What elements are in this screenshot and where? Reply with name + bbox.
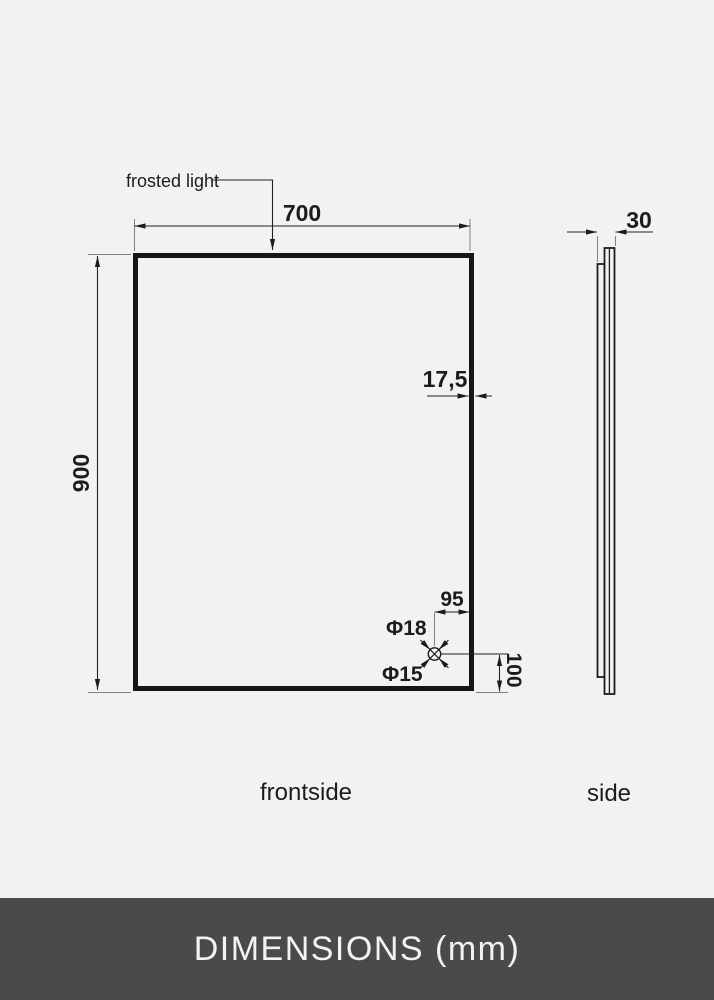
hole-outer-dia-label: Φ18	[386, 617, 427, 640]
hole-leader-se	[439, 658, 449, 668]
frosted-light-label: frosted light	[126, 171, 219, 191]
dim-depth-value: 30	[626, 207, 652, 233]
hole-leader-ne	[439, 640, 449, 650]
front-view: frosted light 700 900 17,5	[68, 171, 525, 806]
footer-title: DIMENSIONS (mm)	[194, 930, 521, 969]
hole-detail: 95 Φ18 Φ15 100	[382, 588, 525, 693]
hole-inner-dia-label: Φ15	[382, 663, 423, 686]
technical-drawing: frosted light 700 900 17,5	[0, 0, 714, 898]
side-view: 30 side	[567, 207, 653, 807]
footer-bar: DIMENSIONS (mm)	[0, 898, 714, 1000]
dim-frame-depth-value: 17,5	[423, 366, 468, 392]
dim-width: 700	[135, 200, 471, 251]
dim-hole-offset-y-value: 100	[502, 652, 525, 687]
dim-width-value: 700	[283, 200, 321, 226]
dim-height-value: 900	[68, 454, 94, 492]
side-view-label: side	[587, 780, 631, 807]
dim-frame-depth: 17,5	[423, 366, 492, 396]
frosted-light-leader	[213, 180, 273, 250]
dimension-sheet: frosted light 700 900 17,5	[0, 0, 714, 1000]
hole-leader-nw	[421, 640, 431, 650]
dim-height: 900	[68, 255, 131, 693]
side-view-back-panel	[598, 264, 605, 677]
dim-hole-offset-x-value: 95	[440, 588, 464, 611]
front-view-label: frontside	[260, 779, 352, 806]
